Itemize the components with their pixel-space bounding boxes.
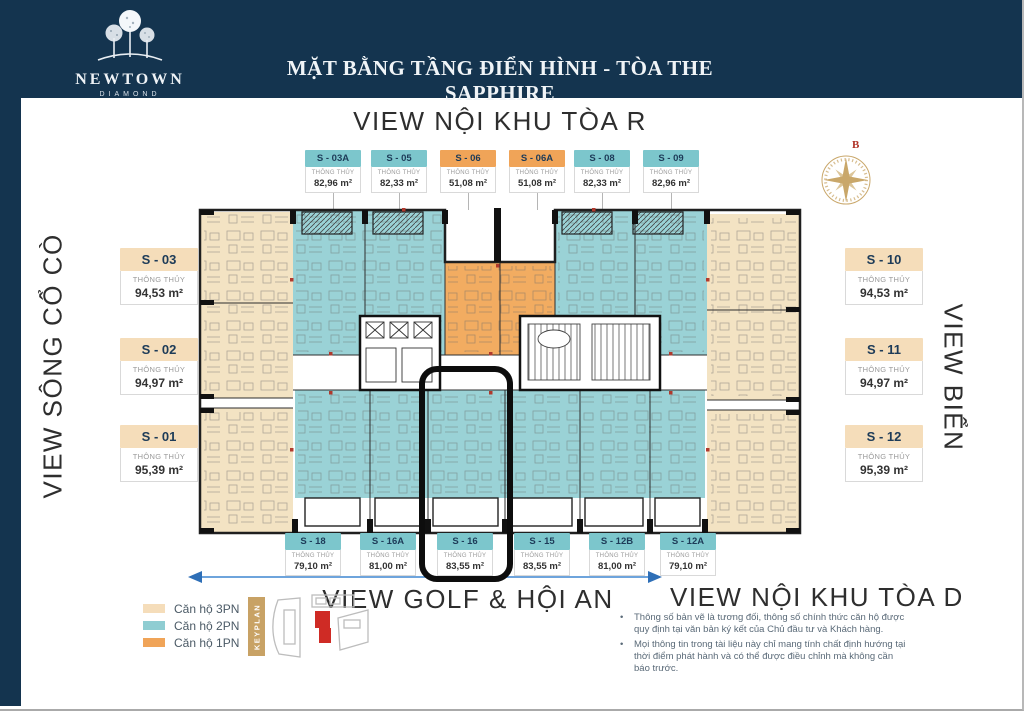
- unit-label-s-06a: S - 06ATHÔNG THỦY51,08 m²: [509, 150, 565, 193]
- legend-swatch: [143, 621, 165, 630]
- logo-name: NEWTOWN: [70, 71, 190, 89]
- unit-code: S - 12B: [589, 533, 645, 550]
- unit-label-s-11: S - 11THÔNG THỦY94,97 m²: [845, 338, 923, 395]
- unit-label-s-16: S - 16THÔNG THỦY83,55 m²: [437, 533, 493, 576]
- unit-measure-label: THÔNG THỦY: [441, 167, 495, 176]
- unit-code: S - 03: [120, 248, 198, 271]
- plan-center-pier: [494, 208, 501, 262]
- brochure-page: NEWTOWN DIAMOND MẶT BẰNG TẦNG ĐIỂN HÌNH …: [0, 0, 1024, 711]
- keyplan-label: KEYPLAN: [252, 603, 261, 649]
- unit-code: S - 12A: [660, 533, 716, 550]
- disclaimer-note: Thông số bản vẽ là tương đối, thông số c…: [618, 612, 910, 637]
- unit-measure-label: THÔNG THỦY: [372, 167, 426, 176]
- unit-label-s-18: S - 18THÔNG THỦY79,10 m²: [285, 533, 341, 576]
- unit-code: S - 01: [120, 425, 198, 448]
- plan-core-stairs: [520, 316, 660, 390]
- unit-label-s-16a: S - 16ATHÔNG THỦY81,00 m²: [360, 533, 416, 576]
- unit-label-s-03: S - 03THÔNG THỦY94,53 m²: [120, 248, 198, 305]
- disclaimer-note: Mọi thông tin trong tài liệu này chỉ man…: [618, 639, 910, 676]
- unit-label-s-10: S - 10THÔNG THỦY94,53 m²: [845, 248, 923, 305]
- compass-north-letter: B: [852, 139, 860, 151]
- legend-row: Căn hộ 1PN: [143, 634, 239, 651]
- unit-measure-label: THÔNG THỦY: [575, 167, 629, 176]
- left-navy-strip: [0, 98, 21, 706]
- unit-label-s-01: S - 01THÔNG THỦY95,39 m²: [120, 425, 198, 482]
- unit-measure-label: THÔNG THỦY: [515, 550, 569, 559]
- unit-area-value: 81,00 m²: [590, 559, 644, 575]
- unit-area-value: 79,10 m²: [286, 559, 340, 575]
- legend-row: Căn hộ 2PN: [143, 617, 239, 634]
- unit-area-value: 95,39 m²: [846, 461, 922, 481]
- unit-code: S - 02: [120, 338, 198, 361]
- unit-code: S - 15: [514, 533, 570, 550]
- unit-area-value: 51,08 m²: [441, 176, 495, 192]
- keyplan-map: [268, 590, 372, 669]
- disclaimer-notes: Thông số bản vẽ là tương đối, thông số c…: [618, 612, 910, 678]
- unit-area-value: 82,33 m²: [372, 176, 426, 192]
- legend-row: Căn hộ 3PN: [143, 600, 239, 617]
- unit-area-value: 94,97 m²: [121, 374, 197, 394]
- unit-area-value: 95,39 m²: [121, 461, 197, 481]
- notes-list: Thông số bản vẽ là tương đối, thông số c…: [618, 612, 910, 676]
- compass-icon: B: [812, 132, 882, 217]
- unit-area-value: 81,00 m²: [361, 559, 415, 575]
- unit-area-value: 83,55 m²: [438, 559, 492, 575]
- unit-label-s-12a: S - 12ATHÔNG THỦY79,10 m²: [660, 533, 716, 576]
- view-caption-bottom-right: VIEW NỘI KHU TÒA D: [670, 582, 950, 613]
- unit-code: S - 11: [845, 338, 923, 361]
- unit-code: S - 10: [845, 248, 923, 271]
- unit-code: S - 06: [440, 150, 496, 167]
- unit-code: S - 03A: [305, 150, 361, 167]
- view-caption-left: VIEW SÔNG CỔ CÒ: [38, 249, 69, 499]
- unit-area-value: 82,96 m²: [306, 176, 360, 192]
- arrow-left-head: [188, 571, 202, 583]
- unit-label-s-08: S - 08THÔNG THỦY82,33 m²: [574, 150, 630, 193]
- unit-measure-label: THÔNG THỦY: [121, 361, 197, 374]
- unit-code: S - 09: [643, 150, 699, 167]
- unit-measure-label: THÔNG THỦY: [846, 361, 922, 374]
- legend-label: Căn hộ 1PN: [174, 636, 239, 650]
- unit-code: S - 05: [371, 150, 427, 167]
- legend-swatch: [143, 604, 165, 613]
- unit-code: S - 18: [285, 533, 341, 550]
- unit-measure-label: THÔNG THỦY: [644, 167, 698, 176]
- unit-code: S - 16A: [360, 533, 416, 550]
- unit-measure-label: THÔNG THỦY: [121, 448, 197, 461]
- unit-measure-label: THÔNG THỦY: [661, 550, 715, 559]
- plan-core-elevators: [360, 316, 440, 390]
- unit-label-s-12b: S - 12BTHÔNG THỦY81,00 m²: [589, 533, 645, 576]
- unit-code: S - 06A: [509, 150, 565, 167]
- unit-code: S - 12: [845, 425, 923, 448]
- newtown-diamond-logo: NEWTOWN DIAMOND: [70, 8, 190, 94]
- logo-subname: DIAMOND: [70, 91, 190, 98]
- unit-label-s-09: S - 09THÔNG THỦY82,96 m²: [643, 150, 699, 193]
- unit-area-value: 82,96 m²: [644, 176, 698, 192]
- legend-swatch: [143, 638, 165, 647]
- unit-area-value: 94,97 m²: [846, 374, 922, 394]
- trees-logo-icon: [70, 8, 190, 64]
- view-caption-right: VIEW BIỂN: [938, 283, 969, 473]
- unit-area-value: 51,08 m²: [510, 176, 564, 192]
- page-title: MẶT BẰNG TẦNG ĐIỂN HÌNH - TÒA THE SAPPHI…: [230, 56, 770, 106]
- unit-measure-label: THÔNG THỦY: [846, 271, 922, 284]
- unit-area-value: 79,10 m²: [661, 559, 715, 575]
- unit-measure-label: THÔNG THỦY: [590, 550, 644, 559]
- unit-area-value: 94,53 m²: [846, 284, 922, 304]
- unit-measure-label: THÔNG THỦY: [438, 550, 492, 559]
- floor-plan: [190, 198, 810, 543]
- unit-label-s-03a: S - 03ATHÔNG THỦY82,96 m²: [305, 150, 361, 193]
- unit-measure-label: THÔNG THỦY: [510, 167, 564, 176]
- unit-code: S - 08: [574, 150, 630, 167]
- keyplan-bar: KEYPLAN: [248, 597, 265, 656]
- view-caption-top: VIEW NỘI KHU TÒA R: [340, 106, 660, 137]
- unit-measure-label: THÔNG THỦY: [846, 448, 922, 461]
- legend-label: Căn hộ 2PN: [174, 619, 239, 633]
- legend-label: Căn hộ 3PN: [174, 602, 239, 616]
- unit-label-s-05: S - 05THÔNG THỦY82,33 m²: [371, 150, 427, 193]
- header-band: NEWTOWN DIAMOND MẶT BẰNG TẦNG ĐIỂN HÌNH …: [0, 0, 1024, 98]
- unit-measure-label: THÔNG THỦY: [306, 167, 360, 176]
- unit-measure-label: THÔNG THỦY: [121, 271, 197, 284]
- keyplan-highlight-building: [315, 611, 331, 643]
- legend: Căn hộ 3PN Căn hộ 2PN Căn hộ 1PN: [143, 600, 239, 651]
- unit-area-value: 83,55 m²: [515, 559, 569, 575]
- unit-label-s-06: S - 06THÔNG THỦY51,08 m²: [440, 150, 496, 193]
- unit-measure-label: THÔNG THỦY: [286, 550, 340, 559]
- unit-area-value: 94,53 m²: [121, 284, 197, 304]
- unit-area-value: 82,33 m²: [575, 176, 629, 192]
- unit-label-s-12: S - 12THÔNG THỦY95,39 m²: [845, 425, 923, 482]
- unit-code: S - 16: [437, 533, 493, 550]
- unit-label-s-15: S - 15THÔNG THỦY83,55 m²: [514, 533, 570, 576]
- unit-label-s-02: S - 02THÔNG THỦY94,97 m²: [120, 338, 198, 395]
- unit-measure-label: THÔNG THỦY: [361, 550, 415, 559]
